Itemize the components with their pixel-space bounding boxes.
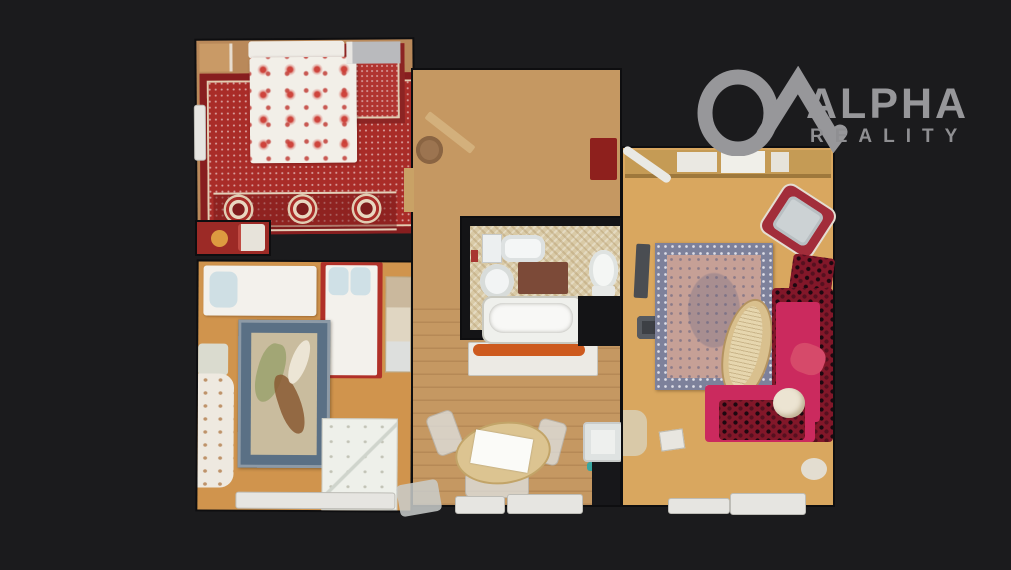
radiator [668,498,730,514]
grey-chair [396,479,443,518]
door-mat [590,138,617,180]
washing-machine [583,422,623,462]
nightstand [346,41,400,63]
beige-item [623,410,647,456]
tile-floor [470,226,620,330]
armchair-cushion [771,194,825,248]
carpet-medallion [287,194,317,224]
room-living-room [623,148,833,505]
white-round-pillow [773,388,805,418]
radiator [455,496,505,514]
radiator [194,105,206,161]
brand-subtitle: REALITY [810,126,968,148]
toilet [501,235,545,262]
room-master-bedroom [196,39,413,227]
double-bed [249,57,357,164]
round-pouf [416,136,443,164]
orange-ball [211,230,228,247]
wall-notch [592,462,620,505]
area-rug [238,320,331,468]
hall-shelf [468,342,598,376]
brand-logo: ALPHA REALITY [690,60,990,165]
wardrobe-corner [199,44,232,72]
glass-shelf [198,343,228,375]
bed-pillows [248,41,344,59]
floor-plan-canvas: ALPHA REALITY [0,0,1011,570]
toilet [589,250,618,290]
rug-pattern [284,338,315,387]
red-towel [471,250,478,262]
tv [634,244,651,299]
round-sink [480,264,514,299]
paper-sheet [470,429,533,473]
radiator [235,492,395,510]
curtain [197,373,234,487]
round-item [801,458,827,480]
bath-mat [518,262,568,294]
bathtub [482,296,584,344]
radiator [507,494,583,514]
rug-field [251,333,318,455]
radiator [730,493,806,515]
blue-pillow [328,267,348,295]
blue-pillow [350,267,370,295]
bench-bag [238,224,265,251]
carpet-medallion [223,194,253,224]
toilet-cistern [482,234,502,263]
carpet-medallion [351,193,381,223]
bedroom-bench-nook [197,222,269,254]
white-box [659,428,686,451]
side-shelf [385,276,412,372]
toilet-base [592,286,615,296]
single-bed-horizontal [203,265,316,316]
orange-items [473,344,585,356]
brand-name: ALPHA [806,80,969,129]
room-bathroom [462,218,628,338]
room-second-bedroom [197,261,411,510]
bathtub-basin [489,303,573,333]
door-threshold [404,168,414,212]
blue-pillow [209,272,237,308]
